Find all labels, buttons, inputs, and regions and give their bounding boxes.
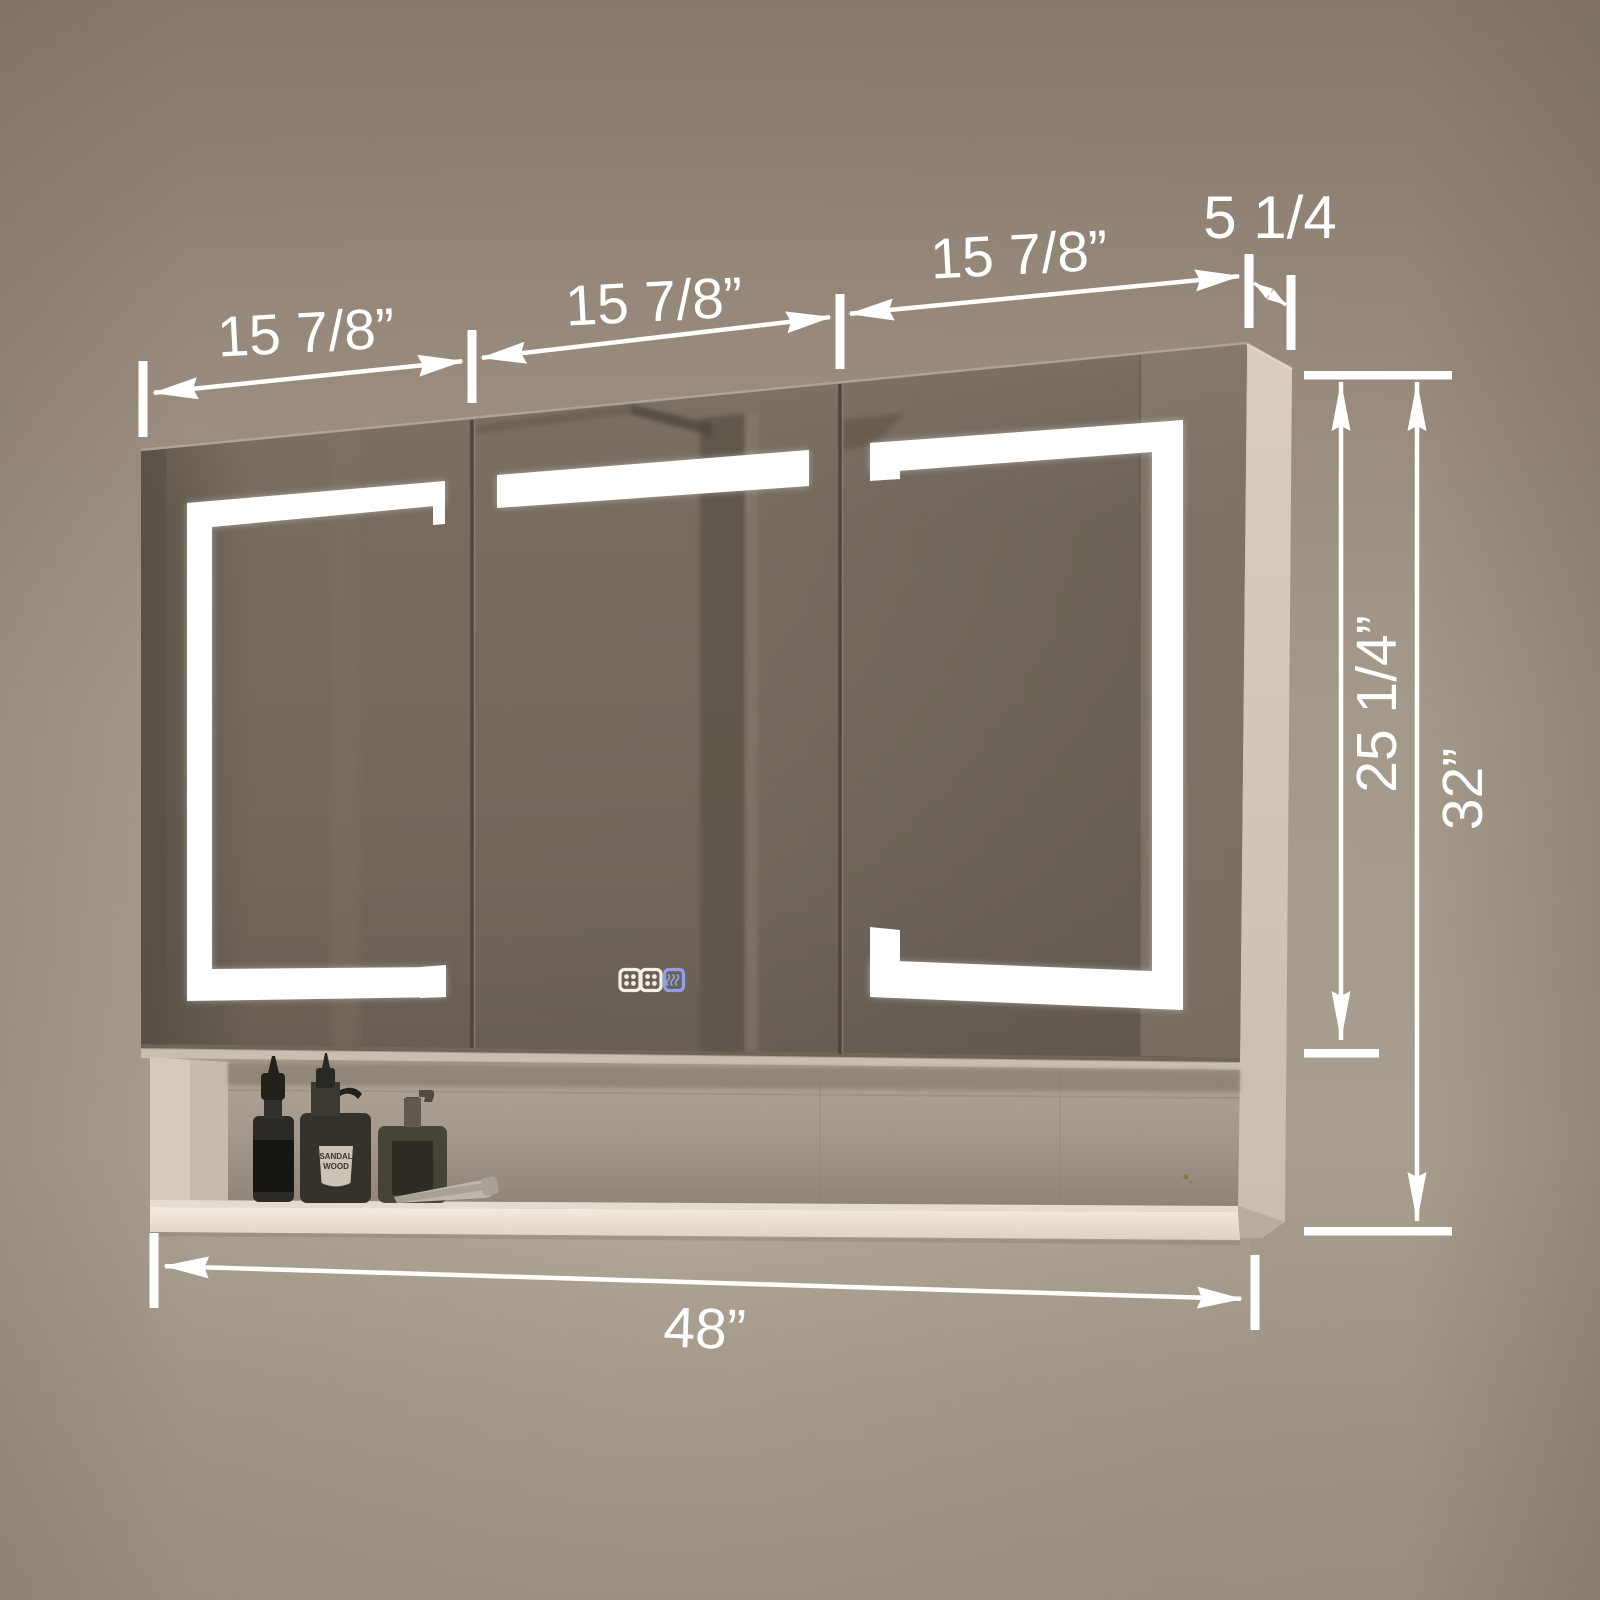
svg-text:5 1/4: 5 1/4 — [1203, 184, 1336, 251]
svg-text:15 7/8”: 15 7/8” — [929, 218, 1110, 291]
svg-text:48”: 48” — [662, 1296, 747, 1363]
svg-text:32”: 32” — [1431, 748, 1495, 830]
svg-text:15 7/8”: 15 7/8” — [564, 265, 745, 338]
svg-text:25 1/4”: 25 1/4” — [1345, 615, 1409, 792]
svg-text:WOOD: WOOD — [323, 1162, 349, 1171]
svg-text:15 7/8”: 15 7/8” — [216, 296, 397, 369]
svg-text:SANDAL: SANDAL — [319, 1152, 352, 1161]
